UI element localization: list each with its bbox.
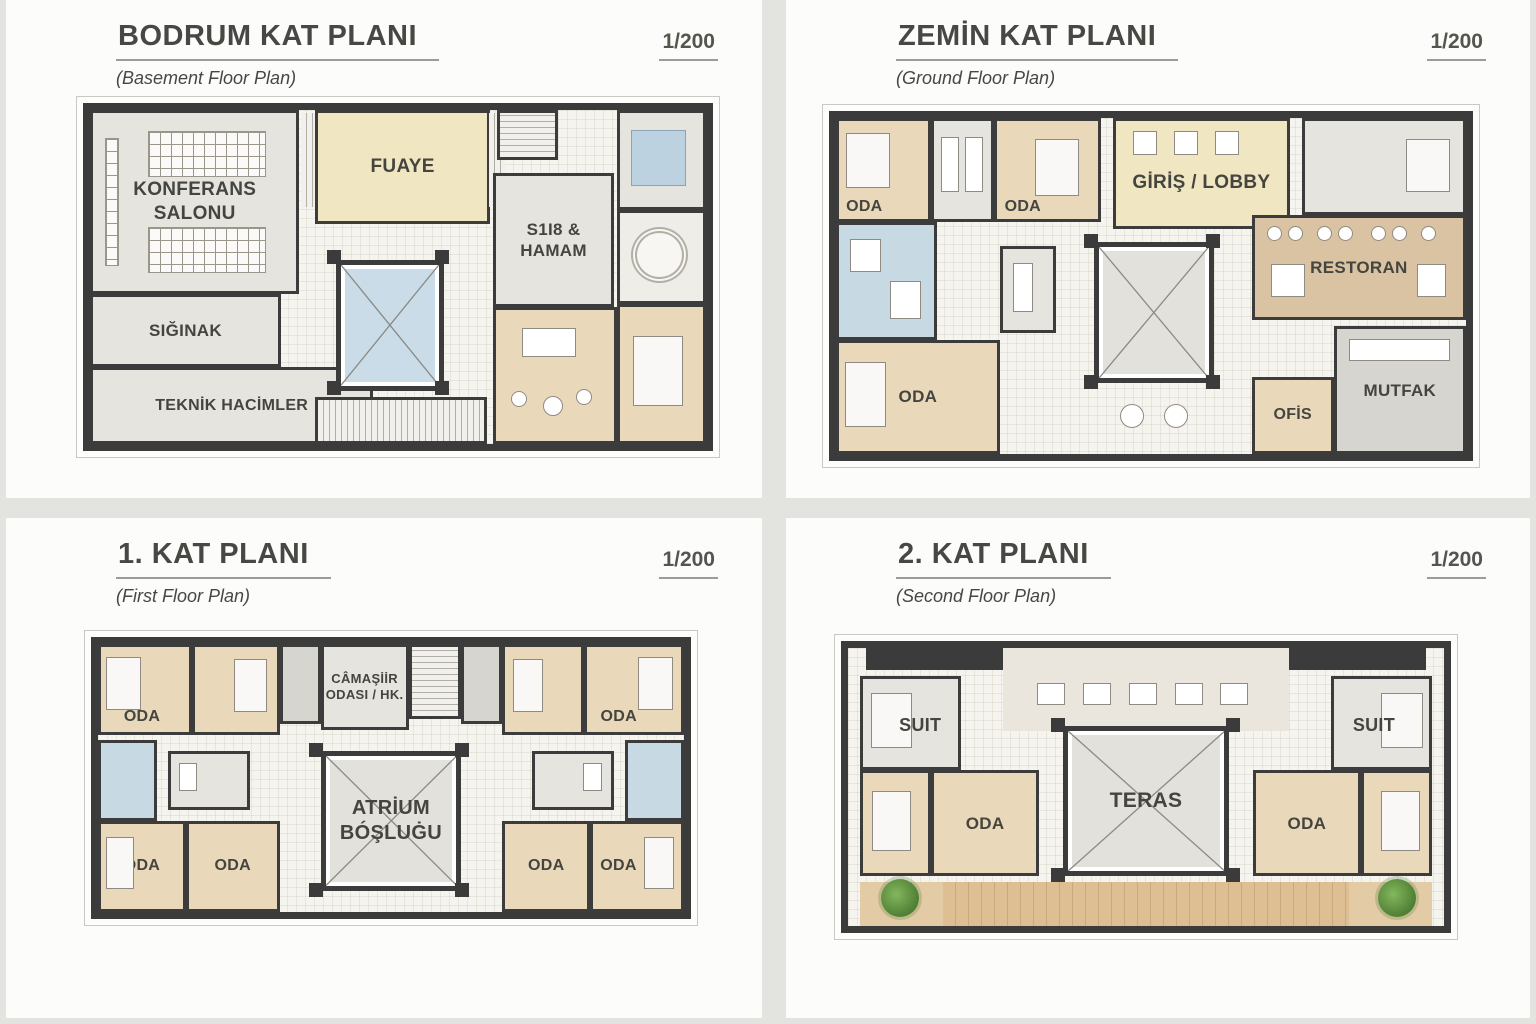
room-massage — [617, 110, 706, 210]
panel-first-header: 1. KAT PLANI (First Floor Plan) — [116, 538, 331, 607]
bed-icon — [644, 837, 674, 888]
entry-nook — [280, 644, 321, 724]
room-label-oda-tl: ODA — [124, 707, 160, 727]
room-restoran: RESTORAN — [1252, 215, 1466, 319]
bed-icon — [872, 791, 911, 851]
ground-plan-drawing: ODA ODA GİRİŞ / LOBBY — [829, 111, 1473, 461]
room-oda-left: ODA — [931, 770, 1038, 876]
scale-label: 1/200 — [659, 548, 718, 579]
bath-core — [931, 118, 994, 222]
room-bedroom — [617, 304, 706, 444]
room-label-mutfak: MUTFAK — [1364, 380, 1437, 401]
panel-first: 1. KAT PLANI (First Floor Plan) 1/200 OD… — [6, 518, 762, 1018]
room-service — [1302, 118, 1466, 215]
atrium-court — [1094, 242, 1214, 383]
room-label-suit-left: SUIT — [899, 714, 941, 737]
scale-label: 1/200 — [1427, 30, 1486, 61]
room-label-teknik: TEKNİK HACİMLER — [155, 396, 308, 416]
bed-icon — [845, 362, 886, 427]
room-label-ofis: OFİS — [1273, 405, 1312, 425]
hamam-basin-icon — [631, 227, 688, 283]
chair-icon — [1267, 226, 1282, 241]
room-oda-bl1: ODA — [98, 821, 186, 912]
second-plan-drawing: SUIT SUIT ODA TERAS — [841, 641, 1451, 933]
room-label-restoran: RESTORAN — [1310, 257, 1408, 278]
skylight-icon — [1220, 683, 1248, 705]
upper-terrace — [1003, 648, 1289, 731]
page-subtitle: (Basement Floor Plan) — [116, 68, 439, 89]
wall-pier — [327, 381, 341, 395]
table-icon — [1417, 264, 1446, 297]
skylight-icon — [1129, 683, 1157, 705]
second-plan-sheet: SUIT SUIT ODA TERAS — [834, 634, 1458, 940]
room-oda-br2: ODA — [590, 821, 684, 912]
basement-plan-drawing: KONFERANS SALONU SIĞINAK TEKNİK HACİMLER… — [83, 103, 713, 451]
chair-icon — [1288, 226, 1303, 241]
room-oda-bl2: ODA — [186, 821, 280, 912]
room-label-spa: S1I8 & HAMAM — [520, 219, 587, 262]
room-label-konferans: KONFERANS SALONU — [133, 178, 256, 226]
stairs-icon — [497, 110, 559, 160]
room-label-siginak: SIĞINAK — [149, 320, 222, 341]
room-label-oda3: ODA — [899, 386, 938, 407]
room-bedroom-right — [1361, 770, 1433, 876]
room-fuaye: FUAYE — [315, 110, 491, 224]
counter-icon — [1349, 339, 1450, 361]
fixture-icon — [965, 137, 982, 192]
room-label-oda-right: ODA — [1288, 813, 1327, 834]
room-suit-left: SUIT — [860, 676, 961, 771]
wall-pier — [1084, 375, 1098, 389]
bath-block — [836, 222, 937, 340]
sofa-icon — [1133, 131, 1157, 154]
room-spa-hamam: S1I8 & HAMAM — [493, 173, 613, 307]
bed-icon — [846, 133, 890, 188]
teras-court: TERAS — [1063, 726, 1230, 876]
wall-pier — [1051, 868, 1065, 882]
panel-basement-header: BODRUM KAT PLANI (Basement Floor Plan) — [116, 20, 439, 89]
first-plan-sheet: ODA CÂMAŞİİR ODASI / HK. ODA — [84, 630, 698, 926]
room-giris-lobby: GİRİŞ / LOBBY — [1113, 118, 1289, 229]
skylight-icon — [1037, 683, 1065, 705]
sofa-icon — [1174, 131, 1198, 154]
bed-icon — [1406, 139, 1450, 192]
room-label-suit-right: SUIT — [1353, 714, 1395, 737]
bed-icon — [638, 657, 674, 710]
chair-icon — [1392, 226, 1407, 241]
bed-icon — [106, 837, 134, 888]
basement-plan-sheet: KONFERANS SALONU SIĞINAK TEKNİK HACİMLER… — [76, 96, 720, 458]
wood-deck — [943, 882, 1348, 926]
table-icon — [1164, 404, 1188, 428]
roof-slab — [1289, 648, 1426, 670]
fixture-icon — [1013, 263, 1033, 312]
bath-small — [1000, 246, 1057, 333]
room-oda-1: ODA — [836, 118, 931, 222]
room-oda-2: ODA — [994, 118, 1101, 222]
room-mutfak: MUTFAK — [1334, 326, 1466, 454]
atrium-void: ATRİUM BÓŞLUĠU — [321, 751, 462, 890]
chair-icon — [1421, 226, 1436, 241]
pool-court — [336, 260, 444, 390]
table-icon — [1271, 264, 1304, 297]
room-konferans-salonu: KONFERANS SALONU — [90, 110, 299, 294]
room-oda-right: ODA — [1253, 770, 1360, 876]
table-icon — [522, 328, 576, 357]
room-laundry: CÂMAŞİİR ODASI / HK. — [321, 644, 409, 730]
skylight-icon — [1083, 683, 1111, 705]
room-oda-tl: ODA — [98, 644, 192, 735]
room-ofis: OFİS — [1252, 377, 1334, 454]
bed-icon — [1381, 791, 1420, 851]
skylight-icon — [1175, 683, 1203, 705]
chair-icon — [1338, 226, 1353, 241]
utility-block — [315, 397, 487, 444]
entry-nook — [461, 644, 502, 724]
conference-seating-icon — [148, 227, 266, 273]
wall-pier — [1051, 718, 1065, 732]
room-label-oda-left: ODA — [966, 813, 1005, 834]
roof-slab — [866, 648, 1003, 670]
panel-ground: ZEMİN KAT PLANI (Ground Floor Plan) 1/20… — [786, 0, 1530, 498]
panel-ground-header: ZEMİN KAT PLANI (Ground Floor Plan) — [896, 20, 1178, 89]
bed-icon — [513, 659, 543, 712]
room-label-oda2: ODA — [1005, 197, 1041, 217]
seat-icon — [576, 389, 592, 405]
panel-second: 2. KAT PLANI (Second Floor Plan) 1/200 S… — [786, 518, 1530, 1018]
panel-second-header: 2. KAT PLANI (Second Floor Plan) — [896, 538, 1111, 607]
fixture-icon — [850, 239, 880, 272]
page-title: BODRUM KAT PLANI — [116, 20, 439, 61]
wall-pier — [1084, 234, 1098, 248]
bath-block — [98, 740, 157, 820]
conference-seating-icon — [105, 138, 119, 266]
bed-icon — [633, 336, 683, 406]
wall-pier — [435, 381, 449, 395]
fixture-icon — [179, 763, 197, 792]
page-subtitle: (Second Floor Plan) — [896, 586, 1111, 607]
room-label-oda1: ODA — [846, 197, 882, 217]
sofa-icon — [1215, 131, 1239, 154]
room-label-oda-tr: ODA — [600, 707, 636, 727]
bed-icon — [106, 657, 141, 710]
room-label-teras: TERAS — [1110, 788, 1183, 814]
wall-pier — [309, 743, 323, 757]
fixture-icon — [941, 137, 958, 192]
wall-pier — [1226, 868, 1240, 882]
page-subtitle: (First Floor Plan) — [116, 586, 331, 607]
room-label-lobby: GİRİŞ / LOBBY — [1132, 171, 1270, 195]
room-suit-right: SUIT — [1331, 676, 1432, 771]
plant-icon — [881, 879, 919, 917]
fixture-icon — [583, 763, 601, 792]
room-oda-tr2 — [502, 644, 584, 735]
panel-basement: BODRUM KAT PLANI (Basement Floor Plan) 1… — [6, 0, 762, 498]
wall-pier — [1206, 375, 1220, 389]
room-lounge — [493, 307, 616, 444]
wall-pier — [309, 883, 323, 897]
fixture-icon — [890, 281, 920, 319]
room-oda-3: ODA — [836, 340, 1000, 454]
wall-pier — [455, 883, 469, 897]
room-siginak: SIĞINAK — [90, 294, 281, 367]
room-hamam-basin — [617, 210, 706, 304]
room-label-oda-br2: ODA — [600, 856, 636, 876]
chair-icon — [1317, 226, 1332, 241]
first-plan-drawing: ODA CÂMAŞİİR ODASI / HK. ODA — [91, 637, 691, 919]
room-oda-tl2 — [192, 644, 280, 735]
table-icon — [1120, 404, 1144, 428]
bath-block — [625, 740, 684, 820]
scale-label: 1/200 — [1427, 548, 1486, 579]
room-oda-tr: ODA — [584, 644, 684, 735]
wall-pier — [1206, 234, 1220, 248]
plant-icon — [1378, 879, 1416, 917]
conference-seating-icon — [148, 131, 266, 177]
floor-plan-sheet-grid: BODRUM KAT PLANI (Basement Floor Plan) 1… — [0, 0, 1536, 1024]
room-oda-br1: ODA — [502, 821, 590, 912]
massage-bed-icon — [631, 130, 686, 187]
room-label-fuaye: FUAYE — [371, 155, 435, 179]
wall-pier — [327, 250, 341, 264]
scale-label: 1/200 — [659, 30, 718, 61]
page-title: 1. KAT PLANI — [116, 538, 331, 579]
bed-icon — [1035, 139, 1079, 196]
utility-room — [532, 751, 614, 810]
x-marker-icon — [341, 265, 439, 385]
ground-plan-sheet: ODA ODA GİRİŞ / LOBBY — [822, 104, 1480, 468]
wall-pier — [1226, 718, 1240, 732]
seat-icon — [543, 396, 563, 416]
stairs-icon — [409, 644, 462, 719]
room-label-atrium: ATRİUM BÓŞLUĠU — [340, 796, 442, 846]
room-label-laundry: CÂMAŞİİR ODASI / HK. — [326, 671, 404, 704]
utility-room — [168, 751, 250, 810]
page-title: ZEMİN KAT PLANI — [896, 20, 1178, 61]
room-bedroom-left — [860, 770, 932, 876]
page-title: 2. KAT PLANI — [896, 538, 1111, 579]
seat-icon — [511, 391, 527, 407]
wall-pier — [435, 250, 449, 264]
wall-pier — [455, 743, 469, 757]
page-subtitle: (Ground Floor Plan) — [896, 68, 1178, 89]
room-label-oda-br1: ODA — [528, 856, 564, 876]
bed-icon — [234, 659, 267, 712]
chair-icon — [1371, 226, 1386, 241]
x-marker-icon — [1099, 247, 1209, 378]
room-label-oda-bl2: ODA — [215, 856, 251, 876]
